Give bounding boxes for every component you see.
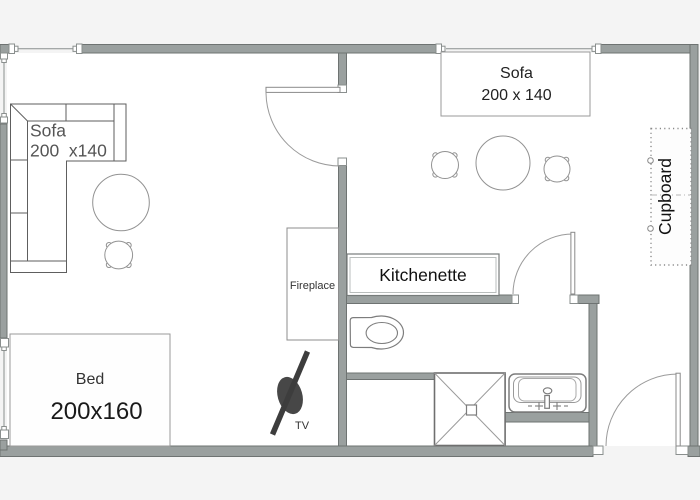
svg-text:Kitchenette: Kitchenette [379, 265, 467, 285]
svg-text:Cupboard: Cupboard [655, 158, 675, 235]
svg-text:200x160: 200x160 [50, 398, 142, 425]
svg-text:Sofa: Sofa [30, 121, 66, 141]
svg-text:200 x140: 200 x140 [30, 141, 107, 161]
svg-text:Sofa: Sofa [500, 65, 533, 82]
svg-text:Fireplace: Fireplace [290, 280, 335, 292]
svg-text:200 x 140: 200 x 140 [481, 87, 551, 104]
svg-text:Bed: Bed [76, 371, 104, 388]
svg-text:TV: TV [295, 420, 310, 432]
